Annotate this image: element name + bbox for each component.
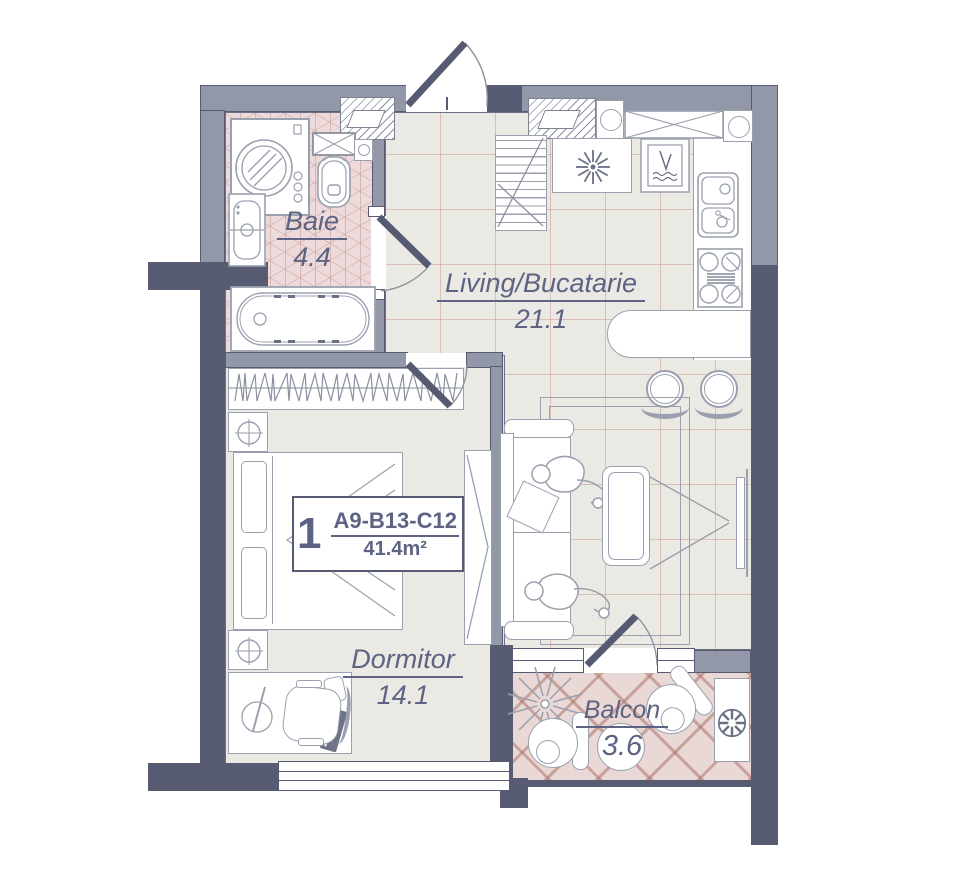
room-name: Living/Bucatarie <box>437 268 645 302</box>
room-label-balcon: Balcon 3.6 <box>570 696 674 763</box>
room-area: 4.4 <box>250 242 374 273</box>
room-label-baie: Baie 4.4 <box>250 206 374 273</box>
room-name: Dormitor <box>343 644 463 678</box>
unit-number: 1 <box>297 512 321 556</box>
entry-door <box>408 43 487 106</box>
unit-area: 41.4m² <box>331 538 459 561</box>
room-name: Baie <box>277 206 347 240</box>
unit-code: A9-B13-C12 <box>331 508 459 537</box>
room-name: Balcon <box>576 696 668 728</box>
bathroom-door <box>379 217 429 291</box>
floor-plan: Baie 4.4 Living/Bucatarie 21.1 Dormitor … <box>0 0 962 880</box>
room-label-living: Living/Bucatarie 21.1 <box>435 268 647 335</box>
unit-label: 1 A9-B13-C12 41.4m² <box>292 496 464 572</box>
room-area: 3.6 <box>570 730 674 763</box>
doors-layer <box>0 0 962 880</box>
bedroom-door <box>408 364 467 406</box>
room-area: 21.1 <box>435 304 647 335</box>
room-label-dormitor: Dormitor 14.1 <box>328 644 478 711</box>
room-area: 14.1 <box>328 680 478 711</box>
balcony-door <box>587 616 657 665</box>
